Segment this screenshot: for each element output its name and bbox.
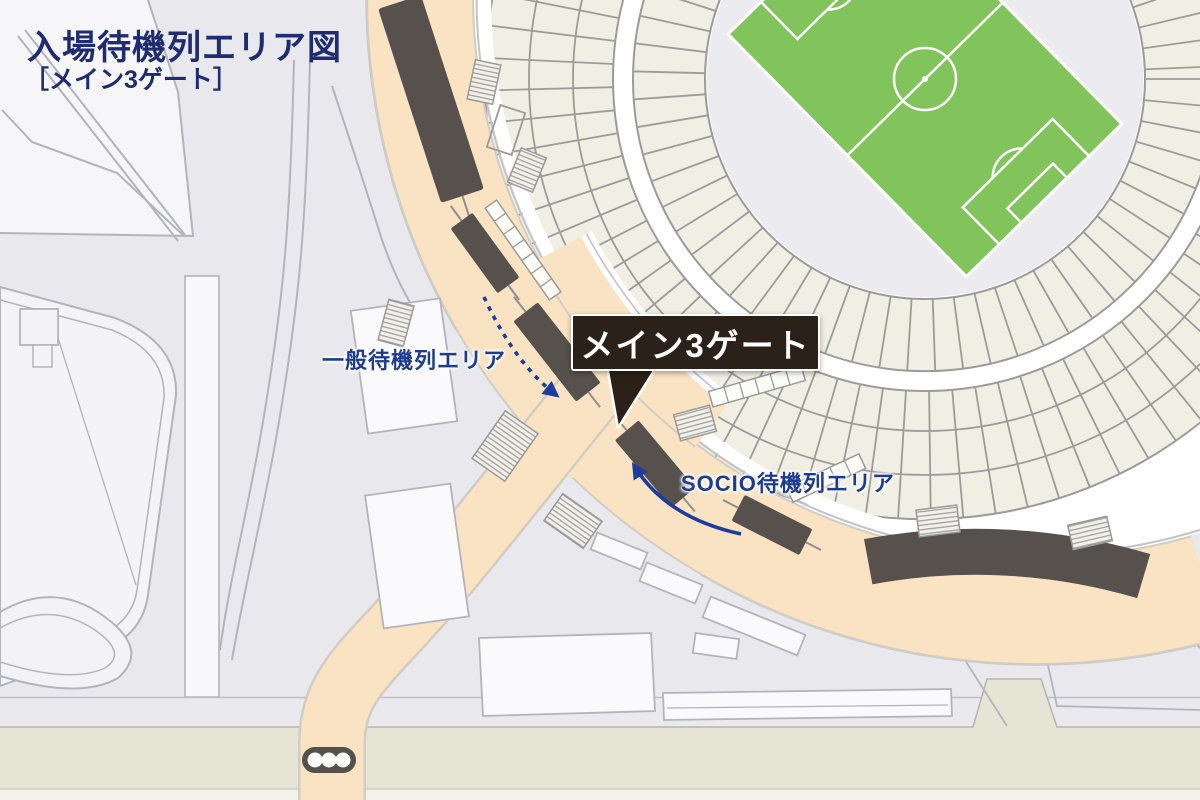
street (185, 276, 219, 697)
ticket-booth (916, 505, 960, 537)
traffic-light-icon (302, 747, 356, 773)
long-building (663, 689, 952, 720)
stadium-area-map: 入場待機列エリア図 ［メイン3ゲート］ 一般待機列エリア SOCIO待機列エリア… (0, 0, 1200, 800)
socio-queue-label: SOCIO待機列エリア (681, 466, 895, 498)
gate-callout-label: メイン3ゲート (571, 314, 820, 371)
annex-building (20, 309, 58, 345)
outer-strip (0, 789, 1200, 800)
building (479, 633, 655, 716)
page-subtitle: ［メイン3ゲート］ (24, 60, 238, 96)
building (365, 484, 469, 629)
map-canvas (0, 0, 1200, 800)
annex-stem (33, 345, 52, 367)
general-queue-label: 一般待機列エリア (322, 343, 506, 375)
socio-queue-bar-large (868, 552, 1143, 576)
